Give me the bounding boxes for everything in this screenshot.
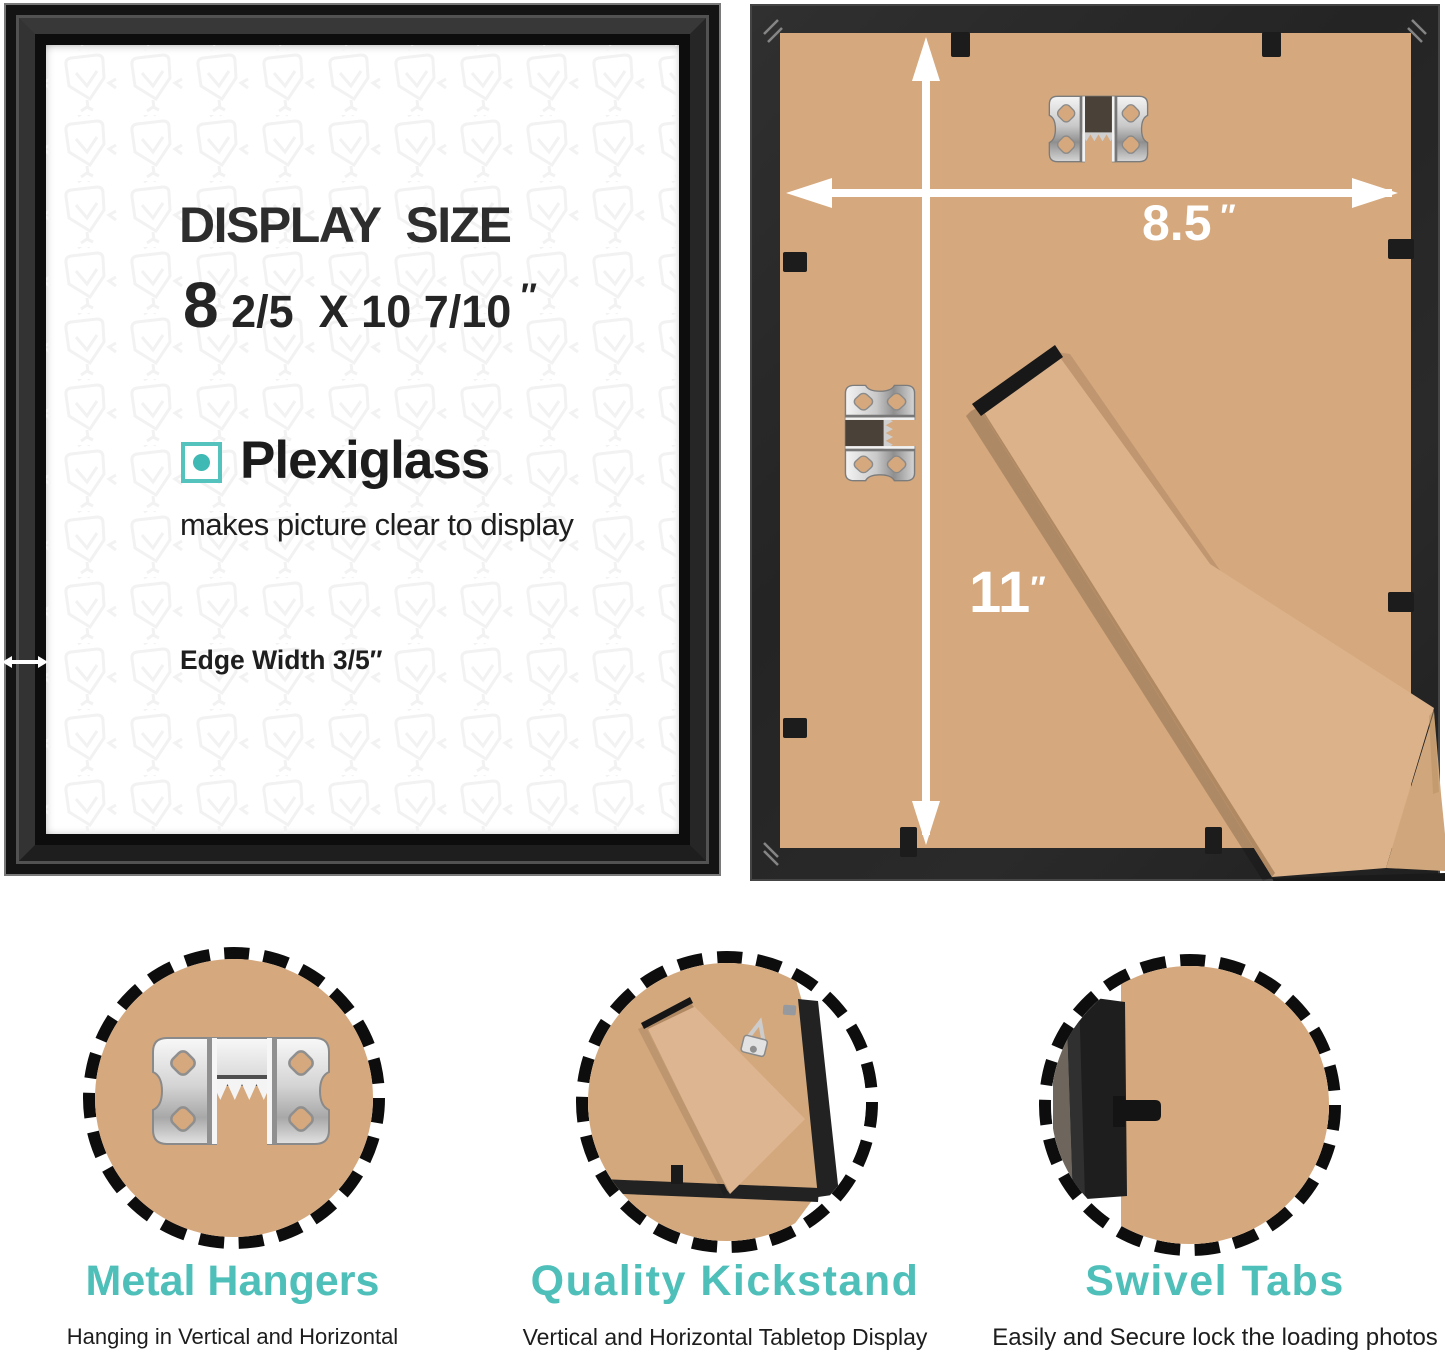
svg-text:11″: 11″ bbox=[969, 560, 1046, 625]
svg-text:8.5 ″: 8.5 ″ bbox=[1142, 195, 1236, 251]
